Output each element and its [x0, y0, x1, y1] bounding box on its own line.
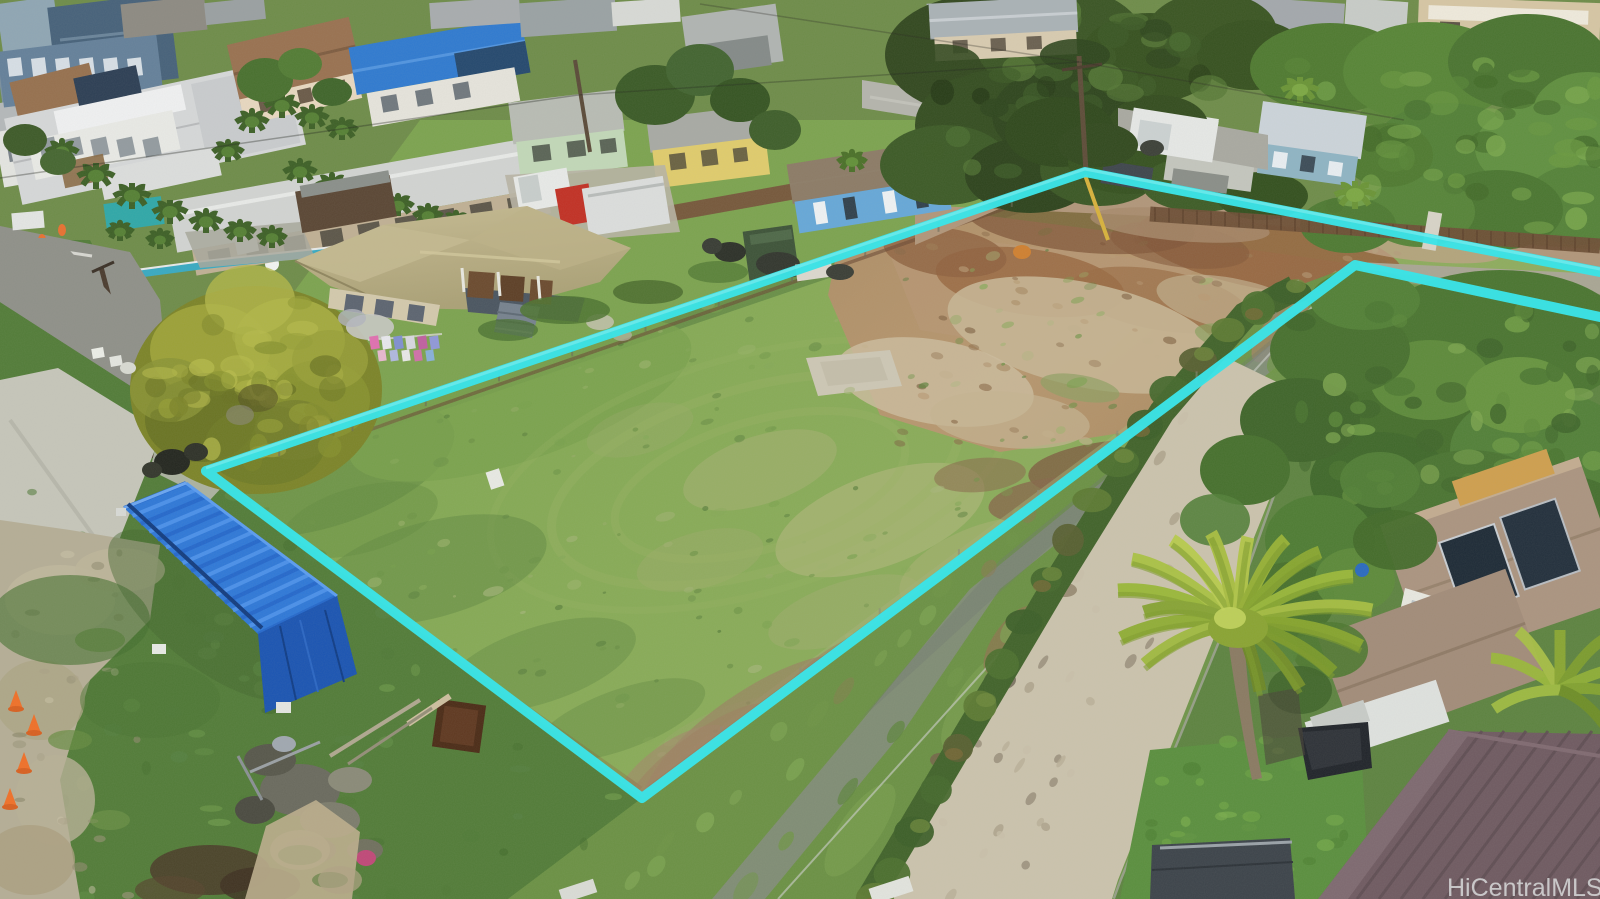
svg-text:HiCentralMLS: HiCentralMLS	[1447, 874, 1600, 899]
